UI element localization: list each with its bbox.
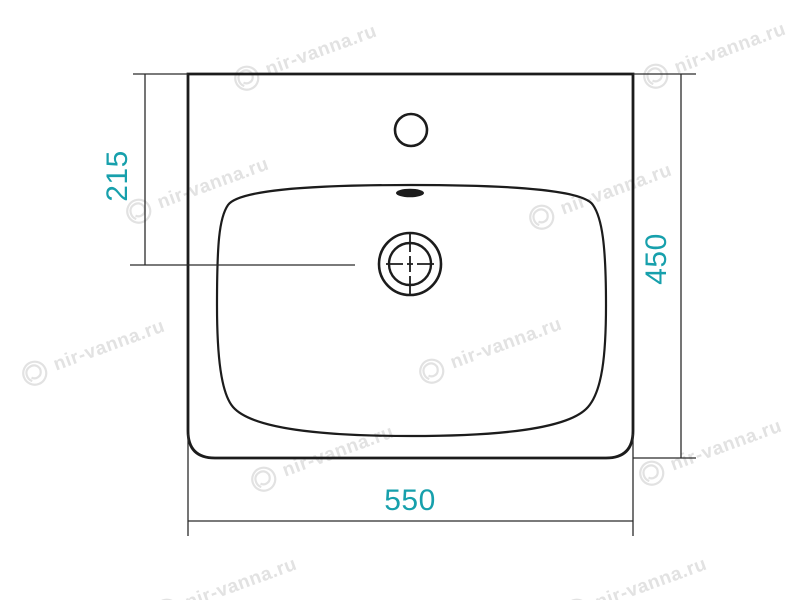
dim-label-450: 450 [640,233,673,285]
dim-label-550: 550 [384,484,436,517]
overflow-slot [396,189,424,198]
sink-technical-drawing: nir-vanna.ru nir-vanna.ru nir-vanna.ru n… [0,0,800,600]
faucet-hole [395,114,427,146]
dim-label-215: 215 [101,150,134,202]
washbasin-top-view-drawing: 215 450 550 [0,0,800,600]
basin-inner-outline [217,185,606,436]
